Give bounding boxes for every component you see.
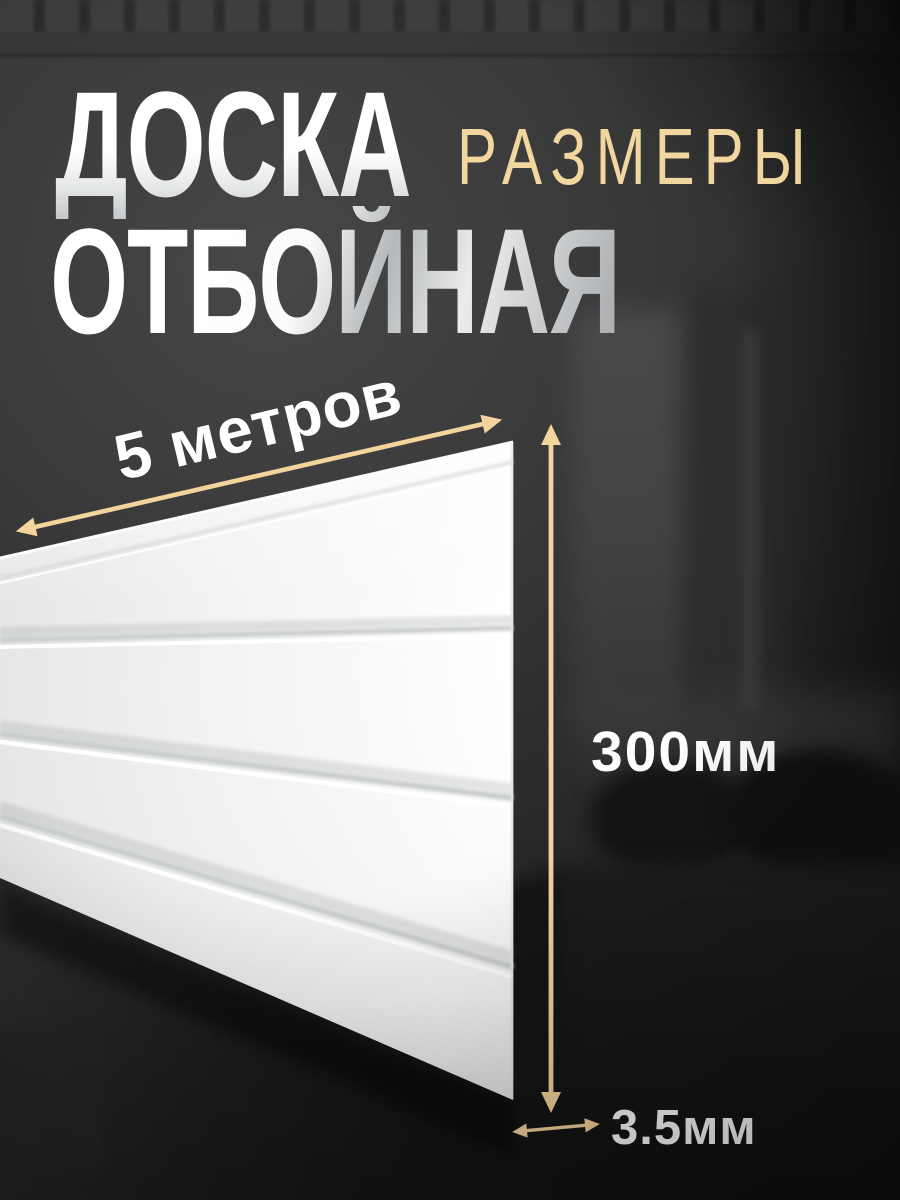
product-dimensions-banner: ДОСКА ОТБОЙНАЯ РАЗМЕРЫ 5 метров 300мм 3.… [0, 0, 900, 1200]
photo-vignette [0, 0, 900, 1200]
